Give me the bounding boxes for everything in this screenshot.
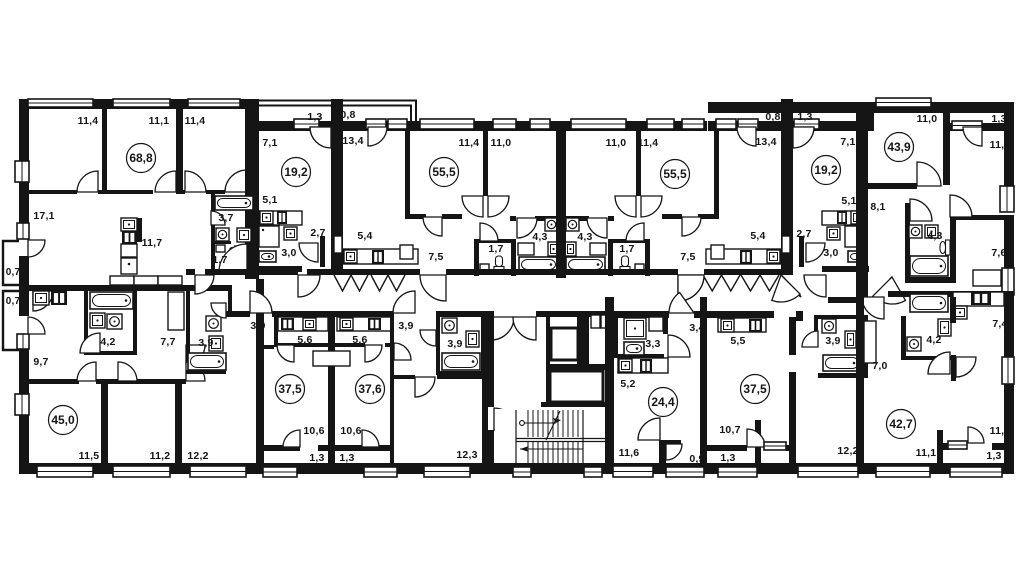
- svg-text:7,5: 7,5: [428, 251, 443, 263]
- svg-text:4,3: 4,3: [532, 231, 547, 243]
- svg-text:9,7: 9,7: [33, 356, 48, 368]
- svg-text:3,9: 3,9: [825, 335, 840, 347]
- svg-text:55,5: 55,5: [663, 167, 687, 181]
- svg-text:11,0: 11,0: [917, 113, 938, 125]
- svg-text:3,4: 3,4: [689, 322, 704, 334]
- svg-text:0,8: 0,8: [340, 109, 355, 121]
- svg-text:2,7: 2,7: [796, 228, 811, 240]
- svg-text:1,7: 1,7: [212, 254, 227, 266]
- svg-text:37,5: 37,5: [743, 382, 767, 396]
- svg-text:37,6: 37,6: [358, 382, 382, 396]
- svg-text:2,7: 2,7: [310, 227, 325, 239]
- svg-text:10,6: 10,6: [340, 425, 361, 437]
- svg-text:37,5: 37,5: [278, 382, 302, 396]
- svg-text:1,3: 1,3: [309, 452, 324, 464]
- svg-text:5,2: 5,2: [620, 378, 635, 390]
- svg-text:12,2: 12,2: [187, 450, 208, 462]
- svg-text:5,4: 5,4: [750, 230, 765, 242]
- svg-text:11,4: 11,4: [459, 137, 480, 149]
- svg-text:0,7: 0,7: [6, 296, 21, 307]
- svg-text:0,7: 0,7: [6, 267, 21, 278]
- svg-text:4,3: 4,3: [927, 230, 942, 242]
- svg-text:19,2: 19,2: [284, 165, 308, 179]
- svg-text:7,4: 7,4: [992, 318, 1007, 330]
- svg-text:11,5: 11,5: [79, 450, 100, 462]
- svg-text:12,3: 12,3: [456, 449, 477, 461]
- svg-text:45,0: 45,0: [51, 413, 75, 427]
- svg-text:17,1: 17,1: [33, 210, 54, 222]
- svg-text:11,1: 11,1: [916, 447, 937, 459]
- svg-text:43,9: 43,9: [887, 140, 911, 154]
- svg-text:0,9: 0,9: [689, 453, 704, 465]
- svg-text:24,4: 24,4: [651, 395, 675, 409]
- svg-text:11,7: 11,7: [990, 425, 1011, 437]
- svg-text:5,4: 5,4: [357, 230, 372, 242]
- svg-text:11,0: 11,0: [606, 137, 627, 149]
- svg-text:68,8: 68,8: [129, 151, 153, 165]
- svg-text:1,3: 1,3: [307, 111, 322, 123]
- svg-text:7,5: 7,5: [680, 251, 695, 263]
- svg-text:1,7: 1,7: [488, 243, 503, 255]
- svg-text:7,7: 7,7: [160, 336, 175, 348]
- svg-text:3,9: 3,9: [398, 320, 413, 332]
- svg-text:10,7: 10,7: [719, 424, 740, 436]
- svg-text:11,1: 11,1: [149, 115, 170, 127]
- svg-text:5,6: 5,6: [297, 334, 312, 346]
- svg-text:11,0: 11,0: [491, 137, 512, 149]
- svg-text:3,9: 3,9: [250, 320, 265, 332]
- svg-text:10,6: 10,6: [303, 425, 324, 437]
- svg-text:11,6: 11,6: [990, 139, 1011, 151]
- svg-text:3,9: 3,9: [198, 337, 213, 349]
- svg-text:4,2: 4,2: [100, 336, 115, 348]
- svg-text:7,0: 7,0: [872, 360, 887, 372]
- svg-text:5,1: 5,1: [262, 194, 277, 206]
- svg-text:13,4: 13,4: [342, 135, 363, 147]
- svg-text:5,1: 5,1: [841, 195, 856, 207]
- svg-text:4,3: 4,3: [577, 231, 592, 243]
- svg-text:1,7: 1,7: [619, 243, 634, 255]
- svg-text:55,5: 55,5: [432, 165, 456, 179]
- svg-text:1,3: 1,3: [339, 452, 354, 464]
- svg-text:1,3: 1,3: [720, 452, 735, 464]
- svg-text:7,6: 7,6: [991, 247, 1006, 259]
- svg-text:1,3: 1,3: [986, 450, 1001, 462]
- svg-text:13,4: 13,4: [755, 136, 776, 148]
- svg-text:11,4: 11,4: [78, 115, 99, 127]
- svg-text:19,2: 19,2: [814, 163, 838, 177]
- svg-text:7,1: 7,1: [262, 137, 277, 149]
- svg-text:11,7: 11,7: [142, 237, 163, 249]
- svg-text:3,0: 3,0: [823, 247, 838, 259]
- svg-text:11,6: 11,6: [619, 447, 640, 459]
- svg-text:1,3: 1,3: [991, 113, 1006, 125]
- svg-text:11,4: 11,4: [638, 137, 659, 149]
- svg-text:11,4: 11,4: [185, 115, 206, 127]
- svg-text:3,7: 3,7: [218, 212, 233, 224]
- svg-text:1,3: 1,3: [797, 111, 812, 123]
- svg-text:0,8: 0,8: [765, 111, 780, 123]
- svg-text:12,2: 12,2: [837, 445, 858, 457]
- svg-text:3,3: 3,3: [645, 338, 660, 350]
- svg-text:5,5: 5,5: [730, 335, 745, 347]
- svg-text:42,7: 42,7: [889, 417, 913, 431]
- svg-text:11,2: 11,2: [150, 450, 171, 462]
- svg-text:3,0: 3,0: [281, 247, 296, 259]
- svg-text:7,1: 7,1: [840, 136, 855, 148]
- svg-text:4,2: 4,2: [926, 334, 941, 346]
- svg-text:8,1: 8,1: [870, 201, 885, 213]
- svg-text:5,6: 5,6: [352, 334, 367, 346]
- svg-text:3,9: 3,9: [447, 338, 462, 350]
